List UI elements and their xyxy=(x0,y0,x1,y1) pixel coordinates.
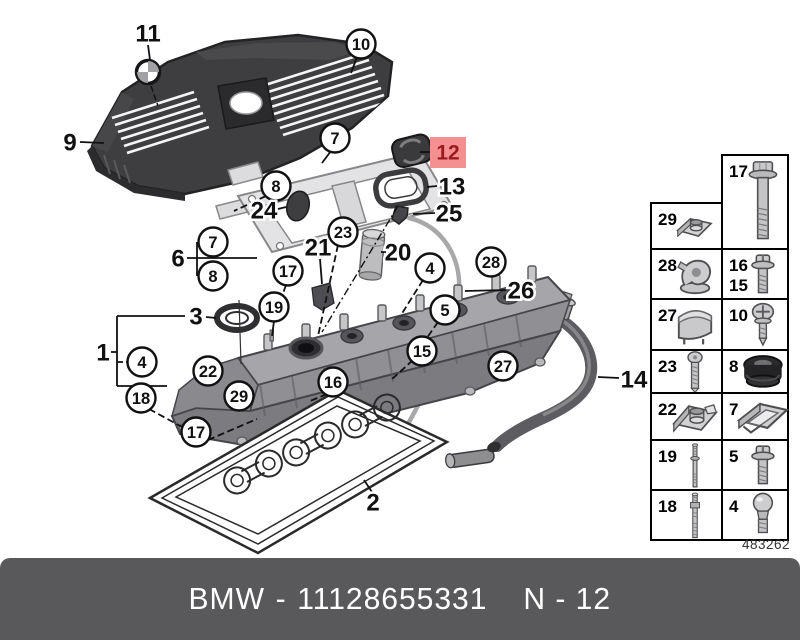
grid-cell-number: 8 xyxy=(729,357,738,376)
callout-8[interactable]: 8 xyxy=(199,262,228,291)
parts-grid-cell-7[interactable]: 7 xyxy=(722,393,788,440)
footer-page-code: N - 12 xyxy=(524,581,612,617)
callout-20[interactable]: 20 xyxy=(385,240,412,267)
grid-cell-number: 16 xyxy=(729,256,748,275)
parts-grid-cell-19[interactable]: 19 xyxy=(651,440,722,490)
footer-part-number: 11128655331 xyxy=(297,581,487,617)
callout-16[interactable]: 16 xyxy=(319,368,348,397)
grid-cell-number: 7 xyxy=(729,400,738,419)
callout-number: 25 xyxy=(436,201,463,228)
callout-24[interactable]: 24 xyxy=(251,198,278,225)
grid-cell-number: 5 xyxy=(729,447,738,466)
diagram-sheet-number: 483262 xyxy=(700,537,790,552)
callout-25[interactable]: 25 xyxy=(436,201,463,228)
callout-7[interactable]: 7 xyxy=(199,228,228,257)
callout-11[interactable]: 11 xyxy=(135,21,160,48)
parts-grid-cell-28[interactable]: 28 xyxy=(651,249,722,299)
callout-14[interactable]: 14 xyxy=(621,367,648,394)
callout-number: 4 xyxy=(137,354,147,372)
callout-3[interactable]: 3 xyxy=(189,304,202,331)
callout-12[interactable]: 12 xyxy=(430,137,466,168)
callout-22[interactable]: 22 xyxy=(194,357,223,386)
callout-18[interactable]: 18 xyxy=(127,384,156,413)
callout-number: 1 xyxy=(96,340,109,367)
grid-cell-number: 23 xyxy=(658,357,677,376)
callout-26[interactable]: 26 xyxy=(508,278,535,305)
grid-cell-number: 4 xyxy=(729,497,739,516)
callout-2[interactable]: 2 xyxy=(366,490,379,517)
callout-number: 23 xyxy=(334,224,352,242)
callout-leader-21 xyxy=(320,259,322,284)
callout-number: 4 xyxy=(425,260,435,278)
grid-cell-number: 18 xyxy=(658,497,677,516)
callout-number: 27 xyxy=(494,358,512,376)
callout-4[interactable]: 4 xyxy=(416,254,445,283)
grid-cell-number: 17 xyxy=(729,162,748,181)
callout-leader-13 xyxy=(427,186,437,187)
callout-leader-26 xyxy=(465,290,506,291)
grid-cell-number: 28 xyxy=(658,256,677,275)
parts-grid-cell-8[interactable]: 8 xyxy=(722,350,788,393)
callout-leader-3 xyxy=(206,317,216,318)
callout-10[interactable]: 10 xyxy=(347,30,376,59)
grid-cell-number: 27 xyxy=(658,306,677,325)
footer-part-bar: BMW - 11128655331 N - 12 xyxy=(0,558,800,640)
parts-grid-cell-17[interactable]: 17 xyxy=(722,155,788,249)
callout-23[interactable]: 23 xyxy=(329,218,358,247)
callout-8[interactable]: 8 xyxy=(262,172,291,201)
callout-number: 7 xyxy=(208,234,217,252)
callout-leader-9 xyxy=(80,142,104,143)
callout-21[interactable]: 21 xyxy=(305,235,332,262)
callout-9[interactable]: 9 xyxy=(63,130,76,157)
exploded-parts-diagram: 17292816152710238227195184 1110971213824… xyxy=(0,0,800,558)
grid-cell-number: 19 xyxy=(658,447,677,466)
callout-number: 10 xyxy=(352,36,370,54)
footer-brand: BMW xyxy=(189,581,265,617)
callout-number: 26 xyxy=(508,278,535,305)
callout-leader-7 xyxy=(322,151,331,163)
callout-number: 6 xyxy=(171,246,184,273)
callout-19[interactable]: 19 xyxy=(260,293,289,322)
callout-number: 15 xyxy=(413,343,431,361)
callout-number: 5 xyxy=(440,302,449,320)
grid-cell-number: 29 xyxy=(658,210,677,229)
parts-grid-cell-5[interactable]: 5 xyxy=(722,440,788,490)
parts-catalog-page: 17292816152710238227195184 1110971213824… xyxy=(0,0,800,640)
parts-grid-cell-18[interactable]: 18 xyxy=(651,490,722,540)
parts-grid-cell-23[interactable]: 23 xyxy=(651,350,722,393)
hose-clip-part-art xyxy=(392,206,408,224)
callout-number: 21 xyxy=(305,235,332,262)
callout-number: 11 xyxy=(135,21,160,48)
callout-28[interactable]: 28 xyxy=(477,248,506,277)
callout-number: 9 xyxy=(63,130,76,157)
callout-number: 16 xyxy=(324,374,342,392)
callout-1[interactable]: 1 xyxy=(96,340,109,367)
parts-grid-cell-4[interactable]: 4 xyxy=(722,490,788,540)
callout-number: 18 xyxy=(132,390,150,408)
callout-29[interactable]: 29 xyxy=(225,382,254,411)
hose-clip-icon xyxy=(678,261,710,294)
grid-cell-number: 15 xyxy=(729,276,748,295)
callout-number: 8 xyxy=(208,268,217,286)
callout-number: 2 xyxy=(366,490,379,517)
callout-leader-25 xyxy=(413,213,435,214)
callout-number: 17 xyxy=(187,424,205,442)
callout-number: 20 xyxy=(385,240,412,267)
callout-number: 28 xyxy=(482,254,500,272)
callout-number: 24 xyxy=(251,198,278,225)
callout-5[interactable]: 5 xyxy=(431,296,460,325)
footer-separator: - xyxy=(276,581,287,617)
parts-grid-cell-16-15[interactable]: 1615 xyxy=(722,249,788,299)
grid-cell-number: 10 xyxy=(729,306,748,325)
callout-number: 13 xyxy=(439,174,466,201)
callout-17[interactable]: 17 xyxy=(182,418,211,447)
callout-number: 19 xyxy=(265,299,283,317)
callout-27[interactable]: 27 xyxy=(489,352,518,381)
parts-grid-cell-27[interactable]: 27 xyxy=(651,299,722,350)
callout-leader-14 xyxy=(598,377,619,378)
callout-number: 7 xyxy=(330,130,339,148)
parts-grid-cell-22[interactable]: 22 xyxy=(651,393,722,440)
grid-cell-number: 22 xyxy=(658,400,677,419)
callout-number: 29 xyxy=(230,388,248,406)
callout-number: 22 xyxy=(199,363,217,381)
callout-13[interactable]: 13 xyxy=(439,174,466,201)
callout-6[interactable]: 6 xyxy=(171,246,184,273)
callout-17[interactable]: 17 xyxy=(274,257,303,286)
parts-grid-cell-10[interactable]: 10 xyxy=(722,299,788,350)
callout-number: 8 xyxy=(271,178,280,196)
grommet-icon xyxy=(744,356,782,387)
callout-number: 3 xyxy=(189,304,202,331)
callout-number: 14 xyxy=(621,367,648,394)
callout-15[interactable]: 15 xyxy=(408,337,437,366)
callout-number: 12 xyxy=(436,142,459,165)
footer-text: BMW - 11128655331 N - 12 xyxy=(189,581,611,617)
bmw-roundel-emblem xyxy=(137,61,160,84)
callout-7[interactable]: 7 xyxy=(321,124,350,153)
vent-tube-art xyxy=(359,229,385,281)
parts-grid-cell-29[interactable]: 29 xyxy=(651,203,722,249)
callout-4[interactable]: 4 xyxy=(128,348,157,377)
callout-number: 17 xyxy=(279,263,297,281)
